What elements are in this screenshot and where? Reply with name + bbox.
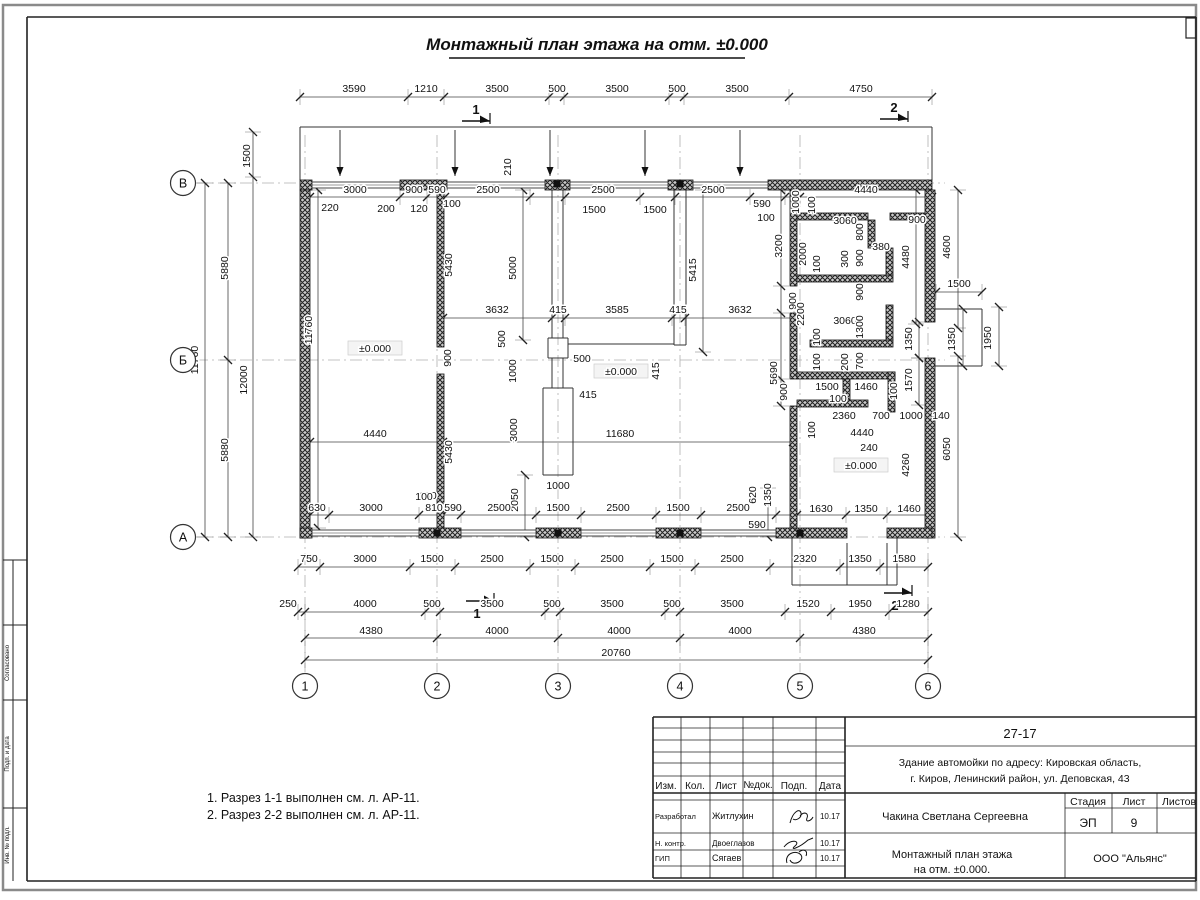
dim-label: 2320 [793, 553, 817, 565]
axis-number: 5 [797, 680, 804, 694]
dim-label: 1000 [790, 190, 802, 214]
dim-label: 3632 [485, 304, 509, 316]
row3-role: ГИП [655, 854, 670, 863]
wall [790, 406, 797, 528]
dim-label: 4440 [854, 184, 878, 196]
floor-plan-svg: Согласовано Подп. и дата Инв. № подл. Мо… [0, 0, 1200, 900]
row2-date: 10.17 [820, 839, 841, 848]
dim-label: 20760 [601, 647, 630, 659]
dim-label: 1500 [666, 502, 690, 514]
dim-label: 1000 [546, 480, 570, 492]
dim-label: 1570 [903, 368, 915, 392]
dim-label: 1210 [414, 83, 438, 95]
dim-label: 500 [496, 330, 508, 348]
col-izm: Изм. [655, 781, 676, 792]
dim-label: 4000 [353, 598, 377, 610]
dim-label: 1500 [546, 502, 570, 514]
axis-letter: Б [179, 354, 187, 368]
dim-label: 2050 [509, 488, 521, 512]
dim-label: 3500 [720, 598, 744, 610]
dim-label: 5690 [768, 361, 780, 385]
dim-label: 5000 [507, 256, 519, 280]
dim-label: 100 [757, 212, 775, 224]
axis-number: 4 [677, 680, 684, 694]
margin-label-2: Подп. и дата [5, 736, 11, 772]
col-list: Лист [715, 781, 737, 792]
dim-label: 415 [579, 389, 597, 401]
dim-label: 3590 [342, 83, 366, 95]
dim-label: 2360 [832, 410, 856, 422]
row1-name: Житлухин [712, 811, 754, 821]
dim-label: 100 [811, 255, 823, 273]
dim-label: 140 [932, 410, 950, 422]
dim-label: 1950 [982, 326, 994, 350]
dim-label: 1350 [762, 483, 774, 507]
dim-label: 3585 [605, 304, 629, 316]
dim-label: 500 [548, 83, 566, 95]
section-label: 1 [472, 102, 479, 117]
dim-label: 590 [753, 198, 771, 210]
margin-label-3: Инв. № подл. [4, 826, 11, 864]
axis-letter: В [179, 177, 187, 191]
col-kol: Кол. [685, 781, 705, 792]
dim-label: 4440 [850, 427, 874, 439]
dim-label: 900 [778, 383, 790, 401]
col-data: Дата [819, 781, 842, 792]
dim-label: 1500 [582, 204, 606, 216]
dim-label: 5880 [219, 256, 231, 280]
dim-label: 500 [668, 83, 686, 95]
sheets-label: Листов [1162, 796, 1197, 808]
dim-label: 500 [573, 353, 591, 365]
dim-label: 700 [872, 410, 890, 422]
dim-label: 6050 [941, 437, 953, 461]
dim-label: 3500 [480, 598, 504, 610]
dim-label: 2000 [797, 242, 809, 266]
dim-label: 380 [872, 241, 890, 253]
stage-label: Стадия [1070, 796, 1106, 808]
column [555, 530, 562, 537]
dim-label: 100 [806, 421, 818, 439]
stage-value: ЭП [1079, 816, 1096, 830]
wall [797, 372, 895, 379]
dim-label: 900 [442, 349, 454, 367]
dim-label: 100 [811, 353, 823, 371]
dim-label: 120 [410, 203, 428, 215]
dim-label: 4380 [359, 625, 383, 637]
row3-date: 10.17 [820, 854, 841, 863]
column [554, 181, 561, 188]
dim-label: 3000 [353, 553, 377, 565]
dim-label: 11680 [606, 428, 635, 440]
dim-label: 2500 [726, 502, 750, 514]
dim-label: 800 [854, 223, 866, 241]
wall [768, 180, 932, 190]
dim-label: 700 [854, 352, 866, 370]
dim-label: 1300 [854, 315, 866, 339]
dim-label: 1500 [815, 381, 839, 393]
column [677, 181, 684, 188]
wall [776, 528, 847, 538]
dim-label: 3632 [728, 304, 752, 316]
dim-label: 1350 [848, 553, 872, 565]
dim-label: 1500 [643, 204, 667, 216]
dim-label: 500 [543, 598, 561, 610]
dim-label: 900 [405, 184, 423, 196]
dim-label: 5880 [219, 438, 231, 462]
dim-label: 1280 [896, 598, 920, 610]
dim-label: 2500 [487, 502, 511, 514]
wall [300, 190, 310, 538]
dim-label: 200 [377, 203, 395, 215]
dim-label: 1500 [660, 553, 684, 565]
designer-name: Чакина Светлана Сергеевна [882, 811, 1029, 823]
dim-label: 4260 [900, 453, 912, 477]
company-name: ООО "Альянс" [1093, 853, 1167, 865]
dim-label: 5430 [443, 253, 455, 277]
row2-name: Двоеглазов [712, 839, 755, 848]
dim-label: 240 [860, 442, 878, 454]
dim-label: 4000 [485, 625, 509, 637]
dim-label: 1630 [809, 503, 833, 515]
dim-label: 1460 [854, 381, 878, 393]
column [797, 530, 804, 537]
axis-number: 3 [555, 680, 562, 694]
dim-label: 300 [839, 250, 851, 268]
wall [300, 180, 312, 190]
wall [887, 528, 932, 538]
row1-role: Разработал [655, 812, 696, 821]
wall [886, 305, 893, 340]
dim-label: 210 [502, 158, 514, 176]
dim-label: 2500 [591, 184, 615, 196]
dim-label: 590 [748, 519, 766, 531]
dim-label: 200 [839, 353, 851, 371]
level-mark: ±0.000 [359, 343, 391, 355]
dim-label: 100 [829, 393, 847, 405]
level-mark: ±0.000 [845, 460, 877, 472]
dim-label: 3500 [600, 598, 624, 610]
row2-role: Н. контр. [655, 839, 686, 848]
dim-label: 1500 [420, 553, 444, 565]
dim-label: 100 [806, 196, 818, 214]
dim-label: 1950 [848, 598, 872, 610]
dim-label: 1350 [903, 327, 915, 351]
stamp-title-line2: на отм. ±0.000. [914, 864, 990, 876]
dim-label: 250 [279, 598, 297, 610]
dim-label: 100 [888, 382, 900, 400]
dim-label: 4600 [941, 235, 953, 259]
drawing-sheet: Согласовано Подп. и дата Инв. № подл. Мо… [0, 0, 1200, 900]
dim-label: 5430 [443, 440, 455, 464]
row1-date: 10.17 [820, 812, 841, 821]
dim-label: 2500 [606, 502, 630, 514]
wall [925, 358, 935, 538]
dim-label: 1000 [899, 410, 923, 422]
axis-number: 2 [434, 680, 441, 694]
dim-label: 750 [300, 553, 318, 565]
wall [925, 190, 935, 322]
dim-label: 1350 [946, 327, 958, 351]
dim-label: 100 [443, 198, 461, 210]
dim-label: 1000 [507, 359, 519, 383]
dim-label: 1460 [897, 503, 921, 515]
dim-label: 3000 [343, 184, 367, 196]
stamp-title-line1: Монтажный план этажа [892, 849, 1013, 861]
dim-label: 100 [811, 328, 823, 346]
dim-label: 810 [425, 502, 443, 514]
dim-label: 12000 [238, 365, 250, 394]
axis-number: 1 [302, 680, 309, 694]
dim-label: 1500 [540, 553, 564, 565]
dim-label: 4480 [900, 245, 912, 269]
dim-label: 590 [428, 184, 446, 196]
level-mark: ±0.000 [605, 366, 637, 378]
dim-label: 900 [854, 283, 866, 301]
project-code: 27-17 [1003, 726, 1036, 741]
sheet-label: Лист [1123, 796, 1146, 808]
sheet-value: 9 [1131, 816, 1138, 830]
column [677, 530, 684, 537]
dim-label: 5415 [687, 258, 699, 282]
dim-label: 1500 [241, 144, 253, 168]
dim-label: 3000 [508, 418, 520, 442]
dim-label: 1350 [854, 503, 878, 515]
dim-label: 11760 [303, 316, 315, 345]
dim-label: 2500 [701, 184, 725, 196]
dim-label: 415 [650, 362, 662, 380]
row3-name: Сягаев [712, 853, 741, 863]
column [434, 530, 441, 537]
note-1: 1. Разрез 1-1 выполнен см. л. АР-11. [207, 791, 420, 805]
dim-label: 3500 [485, 83, 509, 95]
dim-label: 2500 [600, 553, 624, 565]
dim-label: 2500 [480, 553, 504, 565]
dim-label: 3200 [773, 234, 785, 258]
margin-label-1: Согласовано [5, 644, 11, 681]
dim-label: 2200 [795, 302, 807, 326]
address-line1: Здание автомойки по адресу: Кировская об… [899, 757, 1142, 769]
dim-label: 1580 [892, 553, 916, 565]
dim-label: 4750 [849, 83, 873, 95]
dim-label: 4440 [363, 428, 387, 440]
dim-label: 500 [663, 598, 681, 610]
dim-label: 900 [908, 214, 926, 226]
wall [300, 528, 312, 538]
axis-number: 6 [925, 680, 932, 694]
dim-label: 3500 [605, 83, 629, 95]
dim-label: 220 [321, 202, 339, 214]
dim-label: 3500 [725, 83, 749, 95]
dim-label: 2500 [720, 553, 744, 565]
section-label: 2 [890, 100, 897, 115]
axis-letter: А [179, 531, 188, 545]
dim-label: 4380 [852, 625, 876, 637]
page-title: Монтажный план этажа на отм. ±0.000 [426, 35, 768, 54]
dim-label: 2500 [476, 184, 500, 196]
col-podp: Подп. [781, 781, 808, 792]
dim-label: 415 [549, 304, 567, 316]
wall [797, 275, 893, 282]
dim-label: 590 [444, 502, 462, 514]
col-ndok: №док. [743, 780, 772, 791]
dim-label: 415 [669, 304, 687, 316]
note-2: 2. Разрез 2-2 выполнен см. л. АР-11. [207, 808, 420, 822]
dim-label: 500 [423, 598, 441, 610]
dim-label: 4000 [728, 625, 752, 637]
dim-label: 630 [308, 502, 326, 514]
dim-label: 1500 [947, 278, 971, 290]
dim-label: 1520 [796, 598, 820, 610]
dim-label: 900 [854, 249, 866, 267]
address-line2: г. Киров, Ленинский район, ул. Деповская… [910, 773, 1129, 785]
dim-label: 4000 [607, 625, 631, 637]
dim-label: 3000 [359, 502, 383, 514]
